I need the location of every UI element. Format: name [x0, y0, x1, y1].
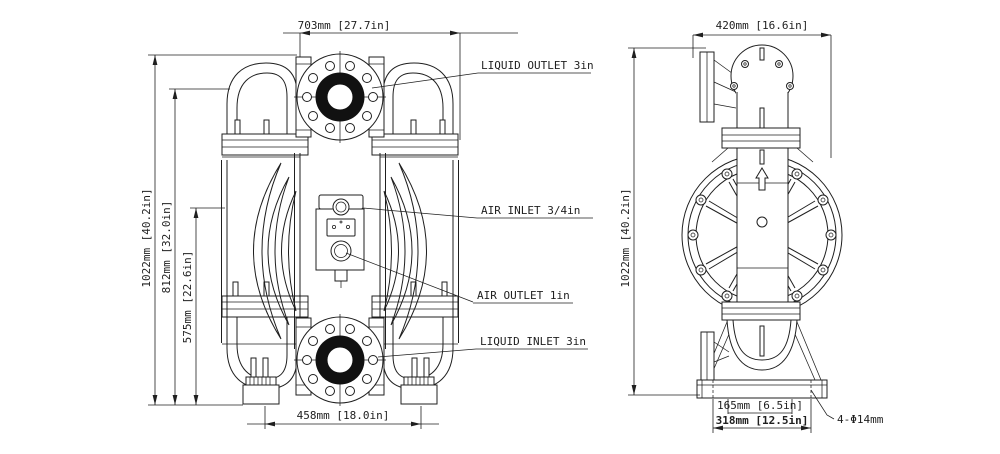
dim-side-base-inner: 165mm [6.5in] — [717, 399, 803, 414]
dim-label-703: 703mm [27.7in] — [298, 19, 391, 32]
air-outlet-port — [331, 241, 351, 261]
pump-dimension-drawing: 703mm [27.7in] 1022mm [40.2in] 812mm [32… — [0, 0, 1000, 454]
dim-label-1022-front: 1022mm [40.2in] — [140, 188, 153, 287]
dim-front-width-bottom: 458mm [18.0in] — [247, 406, 439, 429]
dim-label-165: 165mm [6.5in] — [717, 399, 803, 412]
side-base-plate — [697, 380, 827, 398]
label-air-inlet: AIR INLET 3/4in — [481, 204, 580, 217]
front-view — [222, 51, 459, 406]
dim-front-height-lower: 575mm [22.6in] — [181, 208, 225, 405]
side-bottom-flange-plate — [701, 332, 729, 380]
front-air-valve — [316, 195, 364, 288]
side-bottom-clamp-band — [722, 302, 800, 320]
side-view — [682, 45, 842, 398]
side-top-elbow — [731, 45, 794, 134]
front-top-flange — [294, 51, 386, 143]
label-liquid-inlet: LIQUID INLET 3in — [480, 335, 586, 348]
drawing-canvas: 703mm [27.7in] 1022mm [40.2in] 812mm [32… — [0, 0, 1000, 454]
front-bottom-flange — [294, 314, 386, 406]
dim-label-4xd14: 4-Φ14mm — [837, 413, 884, 426]
leader-air-inlet: AIR INLET 3/4in — [363, 204, 593, 218]
label-air-outlet: AIR OUTLET 1in — [477, 289, 570, 302]
dim-label-318: 318mm [12.5in] — [716, 414, 809, 427]
dim-label-1022-side: 1022mm [40.2in] — [619, 188, 632, 287]
dim-label-458: 458mm [18.0in] — [297, 409, 390, 422]
dim-label-420: 420mm [16.6in] — [716, 19, 809, 32]
label-liquid-outlet: LIQUID OUTLET 3in — [481, 59, 594, 72]
dim-label-575: 575mm [22.6in] — [181, 251, 194, 344]
side-center-column — [737, 148, 788, 303]
dim-front-height-mid: 812mm [32.0in] — [160, 89, 230, 405]
side-bottom-bowl — [703, 320, 821, 380]
dim-label-812: 812mm [32.0in] — [160, 201, 173, 294]
